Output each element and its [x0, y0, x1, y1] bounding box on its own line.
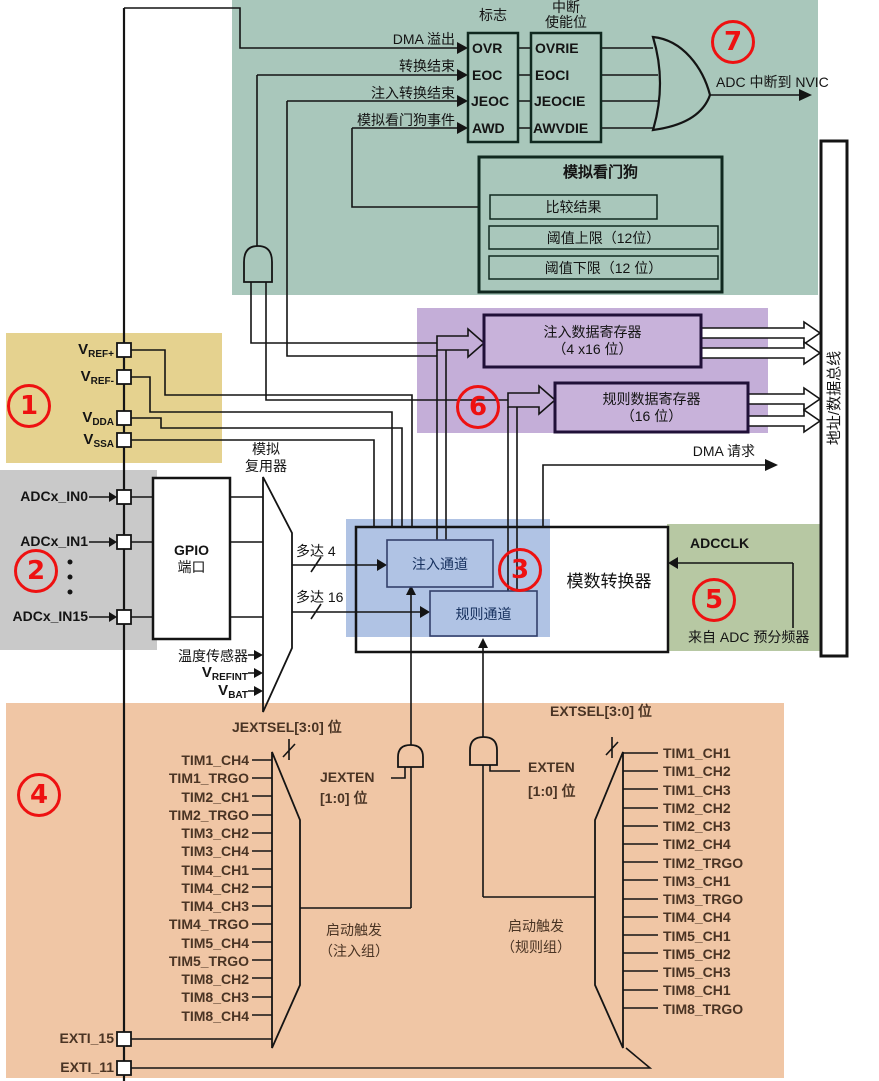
trigger-source-item: TIM8_CH2 [130, 970, 249, 988]
gpio-port-label: GPIO 端口 [153, 478, 230, 639]
pin-adcx-in15: ADCx_IN15 [0, 608, 88, 624]
badge-6: 6 [456, 385, 500, 429]
injected-channels-label: 注入通道 [387, 540, 493, 587]
label-watchdog-event: 模拟看门狗事件 [310, 110, 455, 130]
injected-trigger-line2: （注入组） [310, 941, 398, 961]
trigger-source-item: TIM4_CH2 [130, 879, 249, 897]
pin-adcx-in0: ADCx_IN0 [6, 488, 88, 504]
trigger-source-item: TIM1_CH4 [130, 751, 249, 769]
flags-header: 标志 [462, 5, 524, 25]
flag-jeoc: JEOC [471, 93, 509, 109]
enable-jeocie: JEOCIE [534, 93, 585, 109]
gpio-line2: 端口 [178, 559, 206, 576]
trigger-source-item: TIM4_TRGO [130, 915, 249, 933]
regular-channels-label: 规则通道 [430, 591, 537, 636]
enable-eoci: EOCI [535, 67, 569, 83]
pin-vdda: VDDA [36, 409, 114, 428]
watchdog-upper-threshold: 阈值上限（12位） [489, 226, 718, 249]
badge-5: 5 [692, 578, 736, 622]
injected-register-line2: （4 x16 位） [552, 341, 632, 358]
mux-label-line2: 复用器 [245, 458, 287, 475]
trigger-source-item: TIM3_CH1 [663, 872, 775, 890]
dma-request-label: DMA 请求 [600, 441, 755, 461]
pin-vref-minus: VREF- [36, 368, 114, 387]
exten-label-line1: EXTEN [528, 759, 575, 775]
pin-adcx-in1: ADCx_IN1 [6, 533, 88, 549]
adc-block-diagram: 标志 中断 使能位 DMA 溢出 转换结束 注入转换结束 模拟看门狗事件 OVR… [0, 0, 879, 1081]
mux-label-line1: 模拟 [252, 441, 280, 458]
up-to-4-label: 多达 4 [296, 541, 336, 561]
trigger-source-item: TIM8_CH3 [130, 988, 249, 1006]
enable-awvdie: AWVDIE [533, 120, 588, 136]
bus-label: 地址/数据总线 [823, 298, 845, 498]
adcclk-label: ADCCLK [690, 535, 749, 551]
trigger-source-item: TIM1_TRGO [130, 769, 249, 787]
gpio-line1: GPIO [174, 542, 209, 559]
trigger-source-item: TIM1_CH3 [663, 781, 775, 799]
badge-7: 7 [711, 20, 755, 64]
label-dma-overflow: DMA 溢出 [340, 29, 455, 49]
trigger-source-item: TIM8_CH4 [130, 1007, 249, 1025]
pin-exti15: EXTI_15 [34, 1030, 114, 1046]
analog-mux-label: 模拟 复用器 [234, 440, 298, 476]
trigger-source-item: TIM8_CH1 [663, 981, 775, 999]
vrefint-label: VREFINT [138, 664, 248, 683]
badge-4: 4 [17, 773, 61, 817]
trigger-source-item: TIM1_CH2 [663, 762, 775, 780]
enable-header: 中断 使能位 [529, 0, 603, 30]
regular-trigger-line1: 启动触发 [502, 916, 570, 936]
exten-label-line2: [1:0] 位 [528, 781, 575, 801]
flag-ovr: OVR [472, 40, 502, 56]
trigger-source-item: TIM5_CH1 [663, 927, 775, 945]
flag-awd: AWD [472, 120, 505, 136]
regular-register-line1: 规则数据寄存器 [603, 391, 701, 408]
badge-3: 3 [498, 548, 542, 592]
label-adc-interrupt-nvic: ADC 中断到 NVIC [716, 72, 829, 92]
trigger-source-item: TIM5_CH4 [130, 934, 249, 952]
watchdog-lower-threshold: 阈值下限（12 位） [489, 256, 718, 279]
label-end-of-conversion: 转换结束 [340, 56, 455, 76]
jexten-label-line1: JEXTEN [320, 769, 374, 785]
adc-converter-label: 模数转换器 [549, 567, 669, 592]
regular-trigger-line2: （规则组） [492, 937, 580, 957]
regular-trigger-sources: TIM1_CH1TIM1_CH2TIM1_CH3TIM2_CH2TIM2_CH3… [663, 744, 775, 1018]
pin-exti11: EXTI_11 [34, 1059, 114, 1075]
injected-data-register-label: 注入数据寄存器 （4 x16 位） [484, 315, 701, 367]
label-injected-eoc: 注入转换结束 [325, 83, 455, 103]
trigger-source-item: TIM4_CH3 [130, 897, 249, 915]
enable-header-line2: 使能位 [529, 15, 603, 30]
injected-trigger-sources: TIM1_CH4TIM1_TRGOTIM2_CH1TIM2_TRGOTIM3_C… [130, 751, 249, 1025]
trigger-source-item: TIM4_CH4 [663, 908, 775, 926]
trigger-source-item: TIM3_CH4 [130, 842, 249, 860]
trigger-source-item: TIM4_CH1 [130, 861, 249, 879]
trigger-source-item: TIM1_CH1 [663, 744, 775, 762]
temp-sensor-label: 温度传感器 [138, 646, 248, 666]
injected-register-line1: 注入数据寄存器 [544, 324, 642, 341]
trigger-source-item: TIM2_CH4 [663, 835, 775, 853]
extsel-label: EXTSEL[3:0] 位 [550, 701, 652, 721]
trigger-source-item: TIM8_TRGO [663, 1000, 775, 1018]
injected-trigger-line1: 启动触发 [320, 920, 388, 940]
regular-data-register-label: 规则数据寄存器 （16 位） [555, 383, 748, 432]
pin-vref-plus: VREF+ [36, 341, 114, 360]
watchdog-compare-result: 比较结果 [490, 195, 657, 219]
trigger-source-item: TIM5_TRGO [130, 952, 249, 970]
pin-vssa: VSSA [36, 431, 114, 450]
trigger-source-item: TIM2_CH2 [663, 799, 775, 817]
watchdog-title: 模拟看门狗 [479, 161, 722, 182]
trigger-source-item: TIM3_TRGO [663, 890, 775, 908]
badge-2: 2 [14, 549, 58, 593]
vbat-label: VBAT [138, 682, 248, 701]
trigger-source-item: TIM5_CH3 [663, 963, 775, 981]
jexten-label-line2: [1:0] 位 [320, 788, 367, 808]
trigger-source-item: TIM5_CH2 [663, 945, 775, 963]
enable-ovrie: OVRIE [535, 40, 579, 56]
enable-header-line1: 中断 [529, 0, 603, 15]
trigger-source-item: TIM2_TRGO [130, 806, 249, 824]
trigger-source-item: TIM2_CH1 [130, 788, 249, 806]
prescaler-label: 来自 ADC 预分频器 [688, 627, 809, 647]
jextsel-label: JEXTSEL[3:0] 位 [232, 717, 342, 737]
up-to-16-label: 多达 16 [296, 587, 343, 607]
flag-eoc: EOC [472, 67, 502, 83]
regular-register-line2: （16 位） [621, 408, 682, 425]
trigger-source-item: TIM2_CH3 [663, 817, 775, 835]
trigger-source-item: TIM2_TRGO [663, 854, 775, 872]
trigger-source-item: TIM3_CH2 [130, 824, 249, 842]
